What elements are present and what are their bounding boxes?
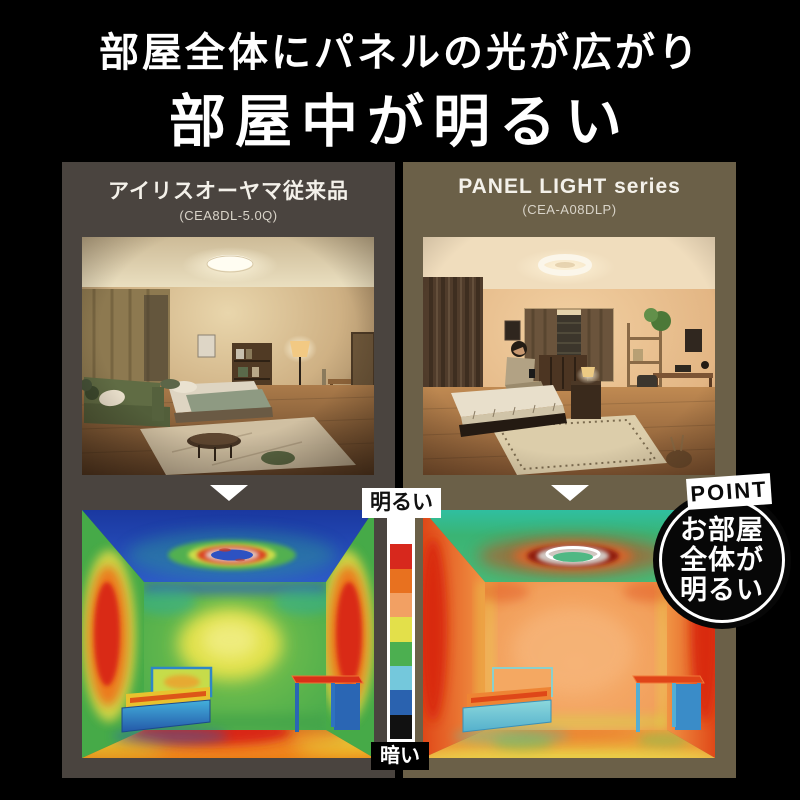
brightness-scale-segment xyxy=(390,617,412,641)
room-photo-conventional xyxy=(82,237,374,475)
brightness-scale-segment xyxy=(390,666,412,690)
brightness-scale-bar xyxy=(387,517,415,742)
headline-line2: 部屋中が明るい xyxy=(0,76,800,158)
brightness-scale-segment xyxy=(390,593,412,617)
headline-line1: 部屋全体にパネルの光が広がり xyxy=(0,20,800,78)
panel-conventional-name: アイリスオーヤマ従来品 xyxy=(62,162,395,205)
product-comparison-image: 部屋全体にパネルの光が広がり 部屋中が明るい アイリスオーヤマ従来品 (CEA8… xyxy=(0,0,800,800)
panel-panel-light-model: (CEA-A08DLP) xyxy=(403,202,736,217)
point-badge-line-2: 全体が xyxy=(680,545,764,575)
point-badge-label: POINT xyxy=(686,473,772,510)
panel-conventional-model: (CEA8DL-5.0Q) xyxy=(62,208,395,223)
ceiling-ring-light xyxy=(478,536,668,576)
panel-panel-light-name: PANEL LIGHT series xyxy=(403,162,736,199)
brightness-scale-bright-label: 明るい xyxy=(362,488,441,518)
point-badge-line-3: 明るい xyxy=(680,575,764,605)
down-arrow-icon xyxy=(551,485,589,501)
brightness-scale-segment xyxy=(390,544,412,568)
down-arrow-icon xyxy=(210,485,248,501)
panel-conventional: アイリスオーヤマ従来品 (CEA8DL-5.0Q) xyxy=(62,162,395,778)
point-badge-circle: お部屋 全体が 明るい xyxy=(659,497,785,623)
room-photo-panel-light xyxy=(423,237,715,475)
brightness-heatmap-conventional xyxy=(82,510,374,758)
brightness-scale-segment xyxy=(390,690,412,714)
brightness-scale-segment xyxy=(390,642,412,666)
brightness-scale-dark-label: 暗い xyxy=(371,742,429,770)
brightness-scale-segment xyxy=(390,715,412,739)
panel-panel-light: PANEL LIGHT series (CEA-A08DLP) xyxy=(403,162,736,778)
ceiling-hotspot xyxy=(127,531,337,579)
point-badge-line-1: お部屋 xyxy=(680,515,764,545)
brightness-scale-segment xyxy=(390,520,412,544)
brightness-scale-segment xyxy=(390,569,412,593)
